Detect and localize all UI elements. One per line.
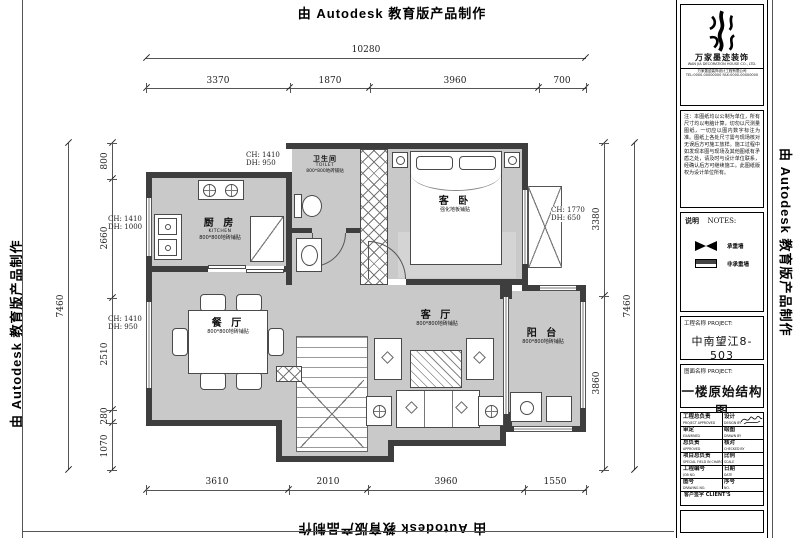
legend-item: 承重墙 (695, 241, 744, 251)
stair-newel-hatch (276, 366, 302, 382)
room-finish: 800*800地砖铺贴 (290, 169, 360, 175)
room-finish: 800*800地砖铺贴 (392, 321, 482, 327)
table-cell: 日期 DATE (722, 465, 763, 478)
sofa-seat-divider (424, 391, 425, 427)
room-finish: 800*800地砖铺贴 (506, 339, 580, 345)
frame-bottom-line (22, 531, 674, 532)
dh-value: DH: 650 (551, 214, 585, 222)
basin-icon (301, 245, 318, 266)
table-cell: 项目总负责 SPECIAL FIELD IN CHARGE (681, 452, 722, 465)
table-row: 项目总负责 SPECIAL FIELD IN CHARGE 比例 SCALE (681, 452, 763, 466)
cell-cn: 工程编号 (681, 465, 722, 473)
table-cell: 工程总负责 PROJECT APPROVED (681, 413, 722, 426)
dining-chair (200, 372, 226, 390)
kitchen-sliding-door (246, 269, 284, 273)
room-finish: 800*800地砖铺贴 (190, 329, 266, 335)
drum-icon (520, 401, 534, 415)
dim-label: 280 (100, 407, 110, 424)
autodesk-banner-right: 由 Autodesk 教育版产品制作 (777, 148, 796, 336)
sofa (396, 390, 480, 428)
dim-tick (65, 466, 72, 473)
dim-ext (599, 470, 609, 471)
cell-cn: 工程总负责 (681, 413, 722, 421)
plant-icon (485, 405, 498, 418)
designer-signature (739, 413, 763, 426)
dim-ext (290, 83, 291, 93)
nightstand (504, 152, 520, 168)
pillow (459, 156, 496, 170)
dim-ext (289, 485, 290, 495)
dim-label: 3380 (592, 208, 602, 231)
dim-label: 1070 (100, 435, 110, 458)
room-name: 卫生间 (290, 155, 360, 163)
table-row: 工程编号 JOB NO. 日期 DATE (681, 465, 763, 479)
project-label: 工程名称 PROJECT: (681, 317, 763, 327)
cell-en: SCALE (722, 460, 763, 464)
project-value: 中南望江8-503 (681, 333, 763, 362)
dim-ext (586, 485, 587, 495)
legend-label: 非承重墙 (727, 260, 749, 268)
dim-label: 800 (100, 152, 110, 169)
wall-segment (146, 266, 208, 272)
ch-value: CH: 1770 (551, 206, 585, 214)
window (514, 426, 572, 432)
cell-cn: 日期 (722, 465, 763, 473)
room-label-living: 客 厅 800*800地砖铺贴 (392, 310, 482, 327)
throw-pillow (473, 351, 486, 364)
notes-text: 注：本图纸均以公制为单位，所有尺寸均以电脑计算，切勿以尺测量图纸，一切应以图内数… (681, 111, 763, 180)
room-label-balcony: 阳 台 800*800地砖铺贴 (506, 328, 580, 345)
dim-line (634, 143, 635, 470)
cell-en: CHECKED BY (722, 447, 763, 451)
table-cell: 工程编号 JOB NO. (681, 465, 722, 478)
room-label-dining: 餐 厅 800*800地砖铺贴 (190, 318, 266, 335)
cell-en: DRAWN BY (722, 434, 763, 438)
stair-break-line (300, 380, 364, 448)
dim-label: 1550 (544, 477, 567, 487)
wall-segment (146, 172, 292, 178)
autodesk-banner-bottom: 由 Autodesk 教育版产品制作 (298, 520, 486, 538)
dim-label: 3860 (592, 372, 602, 395)
room-finish: 强化地板铺贴 (415, 207, 495, 213)
room-label-bathroom: 卫生间 TOILET 800*800地砖铺贴 (290, 155, 360, 175)
approval-table: 工程总负责 PROJECT APPROVED 设计 DESIGN BY 审定 E… (680, 412, 764, 506)
drawing-label: 图面名称 PROJECT: (681, 365, 763, 375)
dim-ext (370, 83, 371, 93)
dim-label: 3960 (435, 477, 458, 487)
wall-segment (388, 440, 506, 446)
company-logo-box: 万家墨迹装饰 WAN JIA DECORATION HOUSE CO., LTD… (680, 4, 764, 106)
room-label-bedroom: 客 卧 强化地板铺贴 (415, 196, 495, 213)
table-row: 总负责 APPROVED 核对 CHECKED BY (681, 439, 763, 453)
dim-label: 1870 (319, 76, 342, 86)
cell-cn: 审定 (681, 426, 722, 434)
frame-right-line (772, 0, 773, 538)
sink-basin (158, 239, 177, 256)
cell-cn: 序号 (722, 478, 763, 486)
throw-pillow (455, 401, 468, 414)
dim-ext (107, 179, 117, 180)
washing-machine (510, 392, 542, 422)
dim-line (68, 143, 69, 470)
legend-title: 说明 NOTES: (681, 213, 763, 229)
lamp-icon (373, 405, 386, 418)
title-block: 万家墨迹装饰 WAN JIA DECORATION HOUSE CO., LTD… (676, 0, 768, 538)
dim-label: 3960 (444, 76, 467, 86)
cell-en: APPROVED (681, 447, 722, 451)
dh-value: DH: 950 (246, 159, 280, 167)
notes-box: 注：本图纸均以公制为单位，所有尺寸均以电脑计算，切勿以尺测量图纸，一切应以图内数… (680, 110, 764, 208)
burner-icon (203, 184, 216, 197)
kitchen-sink (154, 214, 182, 260)
dh-value: DH: 1000 (108, 223, 142, 231)
sink-basin (158, 218, 177, 235)
lamp-icon (396, 156, 405, 165)
ch-value: CH: 1410 (246, 151, 280, 159)
room-finish: 800*800地砖铺贴 (184, 235, 256, 241)
dim-line (146, 58, 586, 59)
dim-ext (107, 143, 117, 144)
dim-label: 7460 (56, 295, 66, 318)
dim-label: 3610 (206, 477, 229, 487)
company-name: 万家墨迹装饰 (681, 53, 763, 62)
drawing-name-box: 图面名称 PROJECT: 一楼原始结构图 (680, 364, 764, 408)
nightstand (392, 152, 408, 168)
lamp-icon (508, 156, 517, 165)
dim-ext (525, 485, 526, 495)
autodesk-banner-top: 由 Autodesk 教育版产品制作 (298, 3, 486, 22)
company-logo-icon (700, 9, 744, 53)
ch-value: CH: 1410 (108, 315, 142, 323)
window-height-label: CH: 1770 DH: 650 (551, 206, 585, 222)
project-name-box: 工程名称 PROJECT: 中南望江8-503 (680, 316, 764, 360)
table-row: 工程总负责 PROJECT APPROVED 设计 DESIGN BY (681, 413, 763, 427)
room-name: 客 卧 (415, 196, 495, 207)
dim-label: 2510 (100, 343, 110, 366)
side-table (478, 396, 504, 426)
table-cell: 设计 DESIGN BY (722, 413, 763, 426)
cell-en: EXAMINED (681, 434, 722, 438)
legend-title-en: NOTES: (707, 217, 736, 225)
room-label-kitchen: 厨 房 KITCHEN 800*800地砖铺贴 (184, 218, 256, 241)
blanket-line (411, 174, 501, 191)
pillow (416, 156, 453, 170)
dim-ext (368, 485, 369, 495)
dining-chair (268, 328, 284, 356)
table-cell: 总负责 APPROVED (681, 439, 722, 452)
room-name: 客 厅 (392, 310, 482, 321)
dim-ext (586, 83, 587, 93)
dim-tick (631, 466, 638, 473)
empty-box (680, 510, 764, 533)
cell-en: SPECIAL FIELD IN CHARGE (681, 460, 722, 464)
window (540, 285, 576, 291)
throw-pillow (381, 351, 394, 364)
washbasin (296, 238, 322, 272)
dim-label: 7460 (623, 295, 633, 318)
dim-line (604, 143, 605, 470)
side-table (366, 396, 392, 426)
dim-ext (599, 143, 609, 144)
dim-label: 3370 (207, 76, 230, 86)
window (146, 302, 152, 388)
cell-en: PROJECT APPROVED (681, 421, 722, 425)
dh-value: DH: 950 (108, 323, 142, 331)
non-bearing-wall-icon (695, 259, 717, 268)
dim-ext (146, 485, 147, 495)
dining-chair (236, 372, 262, 390)
cell-cn: 图号 (681, 478, 722, 486)
window-height-label: CH: 1410 DH: 950 (246, 151, 280, 167)
armchair (374, 338, 402, 380)
bay-window-glass (528, 186, 562, 268)
window-height-label: CH: 1410 DH: 950 (108, 315, 142, 331)
burner-icon (225, 184, 238, 197)
dim-ext (146, 83, 147, 93)
table-cell: 核对 CHECKED BY (722, 439, 763, 452)
frame-left-line (22, 0, 23, 538)
cell-en: DATE (722, 473, 763, 477)
cell-cn: 总负责 (681, 439, 722, 447)
table-row: 审定 EXAMINED 绘图 DRAWN BY (681, 426, 763, 440)
client-signature-row: 客户签字 CLIENT'S (681, 489, 763, 505)
dim-ext (107, 470, 117, 471)
cell-cn: 比例 (722, 452, 763, 460)
armchair (466, 338, 494, 380)
window (146, 198, 152, 256)
table-cell: 比例 SCALE (722, 452, 763, 465)
drawing-sheet: 由 Autodesk 教育版产品制作 由 Autodesk 教育版产品制作 由 … (0, 0, 800, 538)
sofa-seat-divider (452, 391, 453, 427)
dim-ext (599, 296, 609, 297)
wall-segment (276, 456, 394, 462)
drain-icon (165, 224, 171, 230)
bearing-wall-icon (695, 241, 717, 251)
wall-segment (292, 228, 312, 233)
drain-icon (165, 245, 171, 251)
wall-segment (286, 143, 528, 149)
room-name: 阳 台 (506, 328, 580, 339)
legend-box: 说明 NOTES: 承重墙 非承重墙 (680, 212, 764, 312)
cell-cn: 核对 (722, 439, 763, 447)
dim-tick (582, 54, 589, 61)
dim-label: 2010 (317, 477, 340, 487)
dim-label: 10280 (352, 45, 381, 55)
dim-ext (107, 298, 117, 299)
stove (198, 180, 244, 200)
dim-label: 700 (553, 76, 570, 86)
coffee-table (410, 350, 462, 388)
wall-segment (346, 228, 360, 233)
dim-ext (539, 83, 540, 93)
window (580, 302, 586, 408)
cell-en: JOB NO. (681, 473, 722, 477)
utility-cabinet (546, 396, 572, 422)
kitchen-sliding-door (208, 265, 246, 269)
cell-cn: 绘图 (722, 426, 763, 434)
room-name: 厨 房 (184, 218, 256, 229)
wall-segment (146, 420, 282, 426)
legend-item: 非承重墙 (695, 259, 749, 268)
table-cell: 审定 EXAMINED (681, 426, 722, 439)
cell-cn: 项目总负责 (681, 452, 722, 460)
legend-label: 承重墙 (727, 242, 744, 250)
window-height-label: CH: 1410 DH: 1000 (108, 215, 142, 231)
ch-value: CH: 1410 (108, 215, 142, 223)
toilet-bowl (302, 195, 322, 217)
client-label: 客户签字 CLIENT'S (681, 489, 763, 498)
dining-chair (172, 328, 188, 356)
company-phone: TEL:0000-00000000 FAX:0000-00000000 (681, 73, 763, 78)
toilet-tank (294, 194, 302, 218)
room-name: 餐 厅 (190, 318, 266, 329)
legend-title-cn: 说明 (685, 217, 699, 225)
table-cell: 绘图 DRAWN BY (722, 426, 763, 439)
throw-pillow (405, 401, 418, 414)
